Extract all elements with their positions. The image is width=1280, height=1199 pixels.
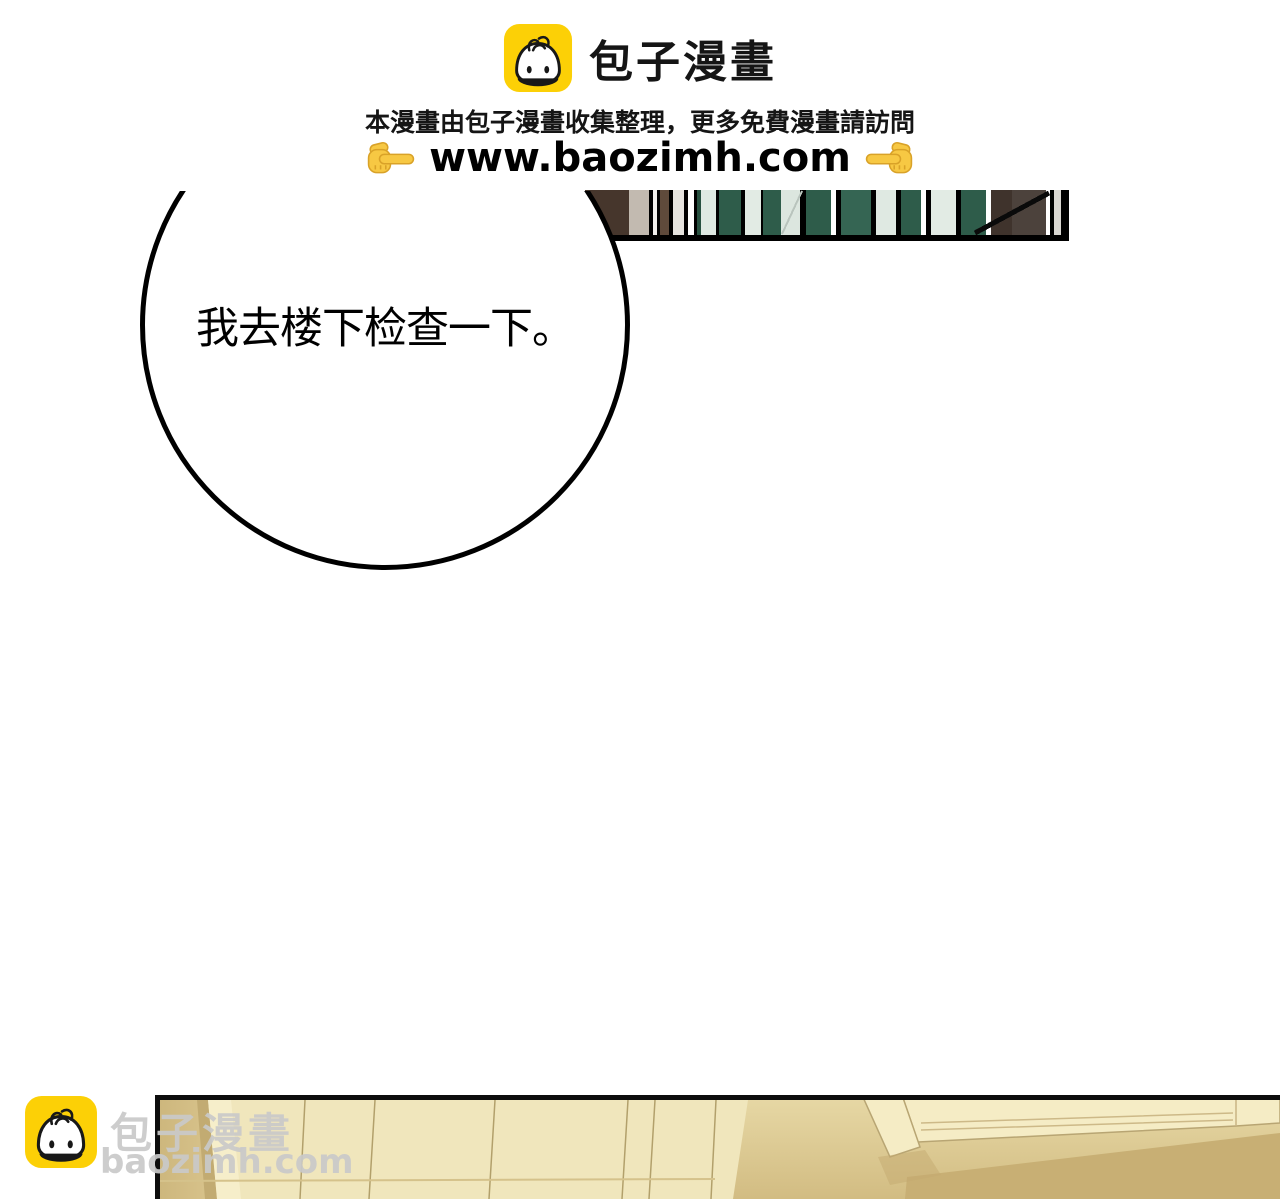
- speech-bubble: 我去楼下检查一下。: [140, 191, 630, 570]
- speech-text: 我去楼下检查一下。: [196, 294, 574, 356]
- baozi-logo-icon: [24, 1095, 98, 1169]
- site-brand[interactable]: 包子漫畫: [0, 22, 1280, 94]
- watermark: 包子漫畫 baozimh.com: [0, 1090, 420, 1199]
- manga-page: 包子漫畫 本漫畫由包子漫畫收集整理，更多免費漫畫請訪問 www.baozimh.…: [0, 0, 1280, 1199]
- tagline-text: 本漫畫由包子漫畫收集整理，更多免費漫畫請訪問: [0, 103, 1280, 139]
- site-url-row: www.baozimh.com: [0, 135, 1280, 181]
- pointing-left-icon: [865, 141, 913, 175]
- speech-bubble-clip: 我去楼下检查一下。: [0, 191, 680, 591]
- brand-name: 包子漫畫: [589, 26, 777, 90]
- site-url-link[interactable]: www.baozimh.com: [429, 135, 851, 181]
- watermark-url: baozimh.com: [100, 1142, 354, 1182]
- baozi-logo-icon: [503, 23, 573, 93]
- pointing-right-icon: [367, 141, 415, 175]
